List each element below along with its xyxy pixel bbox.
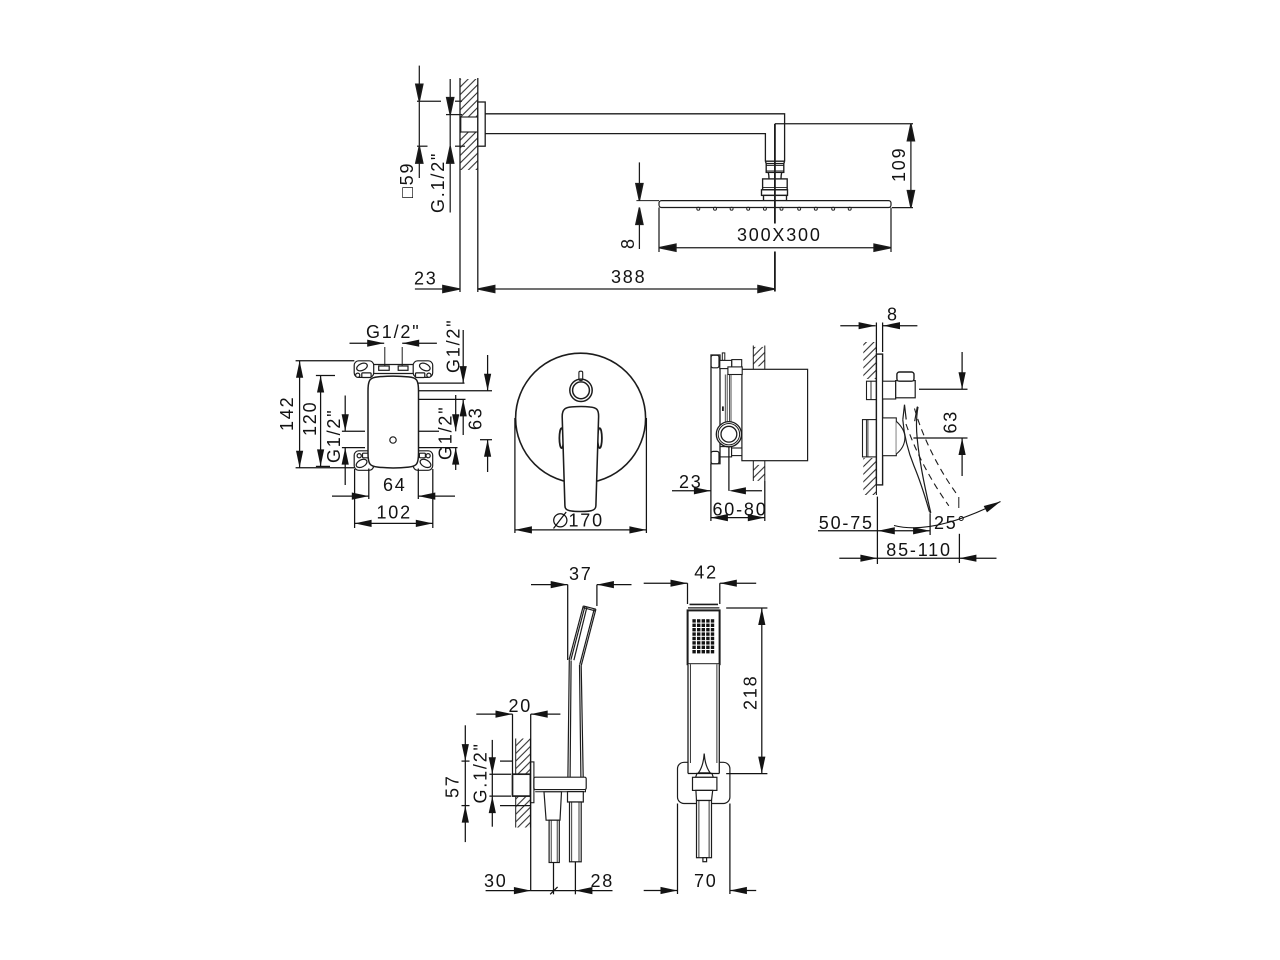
svg-text:23: 23 bbox=[679, 472, 703, 492]
svg-text:102: 102 bbox=[377, 503, 412, 523]
svg-text:25°: 25° bbox=[934, 513, 967, 533]
svg-text:37: 37 bbox=[569, 564, 593, 584]
svg-text:142: 142 bbox=[277, 396, 297, 431]
svg-text:63: 63 bbox=[941, 410, 961, 434]
svg-text:63: 63 bbox=[466, 406, 486, 430]
svg-text:70: 70 bbox=[694, 871, 718, 891]
svg-text:G.1/2": G.1/2" bbox=[471, 742, 491, 803]
svg-text:50-75: 50-75 bbox=[819, 513, 874, 533]
svg-text:G.1/2": G.1/2" bbox=[428, 152, 448, 213]
svg-text:G1/2": G1/2" bbox=[324, 409, 344, 463]
svg-text:120: 120 bbox=[300, 401, 320, 436]
svg-text:G1/2": G1/2" bbox=[436, 406, 456, 460]
svg-text:30: 30 bbox=[484, 871, 508, 891]
svg-text:300X300: 300X300 bbox=[737, 225, 822, 245]
svg-text:64: 64 bbox=[383, 475, 407, 495]
svg-text:57: 57 bbox=[443, 774, 463, 798]
svg-text:85-110: 85-110 bbox=[886, 540, 952, 560]
svg-text:388: 388 bbox=[611, 267, 646, 287]
svg-text:G1/2": G1/2" bbox=[444, 319, 464, 373]
svg-text:28: 28 bbox=[591, 871, 615, 891]
svg-text:8: 8 bbox=[887, 304, 899, 324]
svg-text:42: 42 bbox=[694, 563, 718, 583]
svg-text:109: 109 bbox=[889, 147, 909, 182]
svg-text:218: 218 bbox=[741, 675, 761, 710]
svg-text:20: 20 bbox=[509, 696, 533, 716]
svg-text:G1/2": G1/2" bbox=[366, 322, 420, 342]
svg-text:8: 8 bbox=[618, 237, 638, 249]
svg-text:170: 170 bbox=[569, 511, 604, 531]
svg-text:□59: □59 bbox=[397, 162, 417, 198]
svg-text:23: 23 bbox=[414, 269, 438, 289]
svg-text:60-80: 60-80 bbox=[713, 500, 768, 520]
